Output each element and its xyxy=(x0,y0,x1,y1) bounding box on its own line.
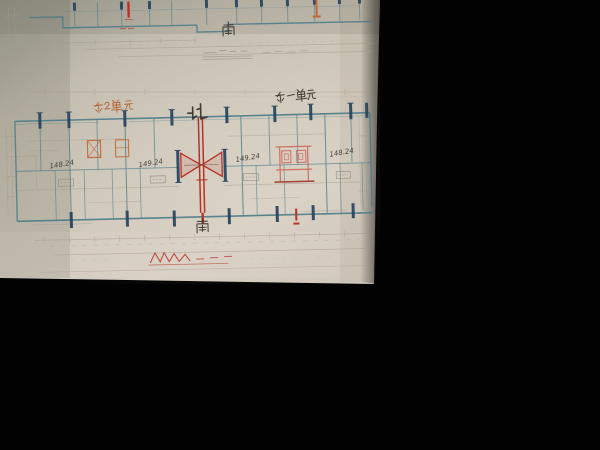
paper-sheet xyxy=(0,0,380,284)
floor-plan-drawing: 148.24 149.24 149.24 148.24 xyxy=(0,0,600,450)
blueprint-photo: 148.24 149.24 149.24 148.24 xyxy=(0,0,600,450)
